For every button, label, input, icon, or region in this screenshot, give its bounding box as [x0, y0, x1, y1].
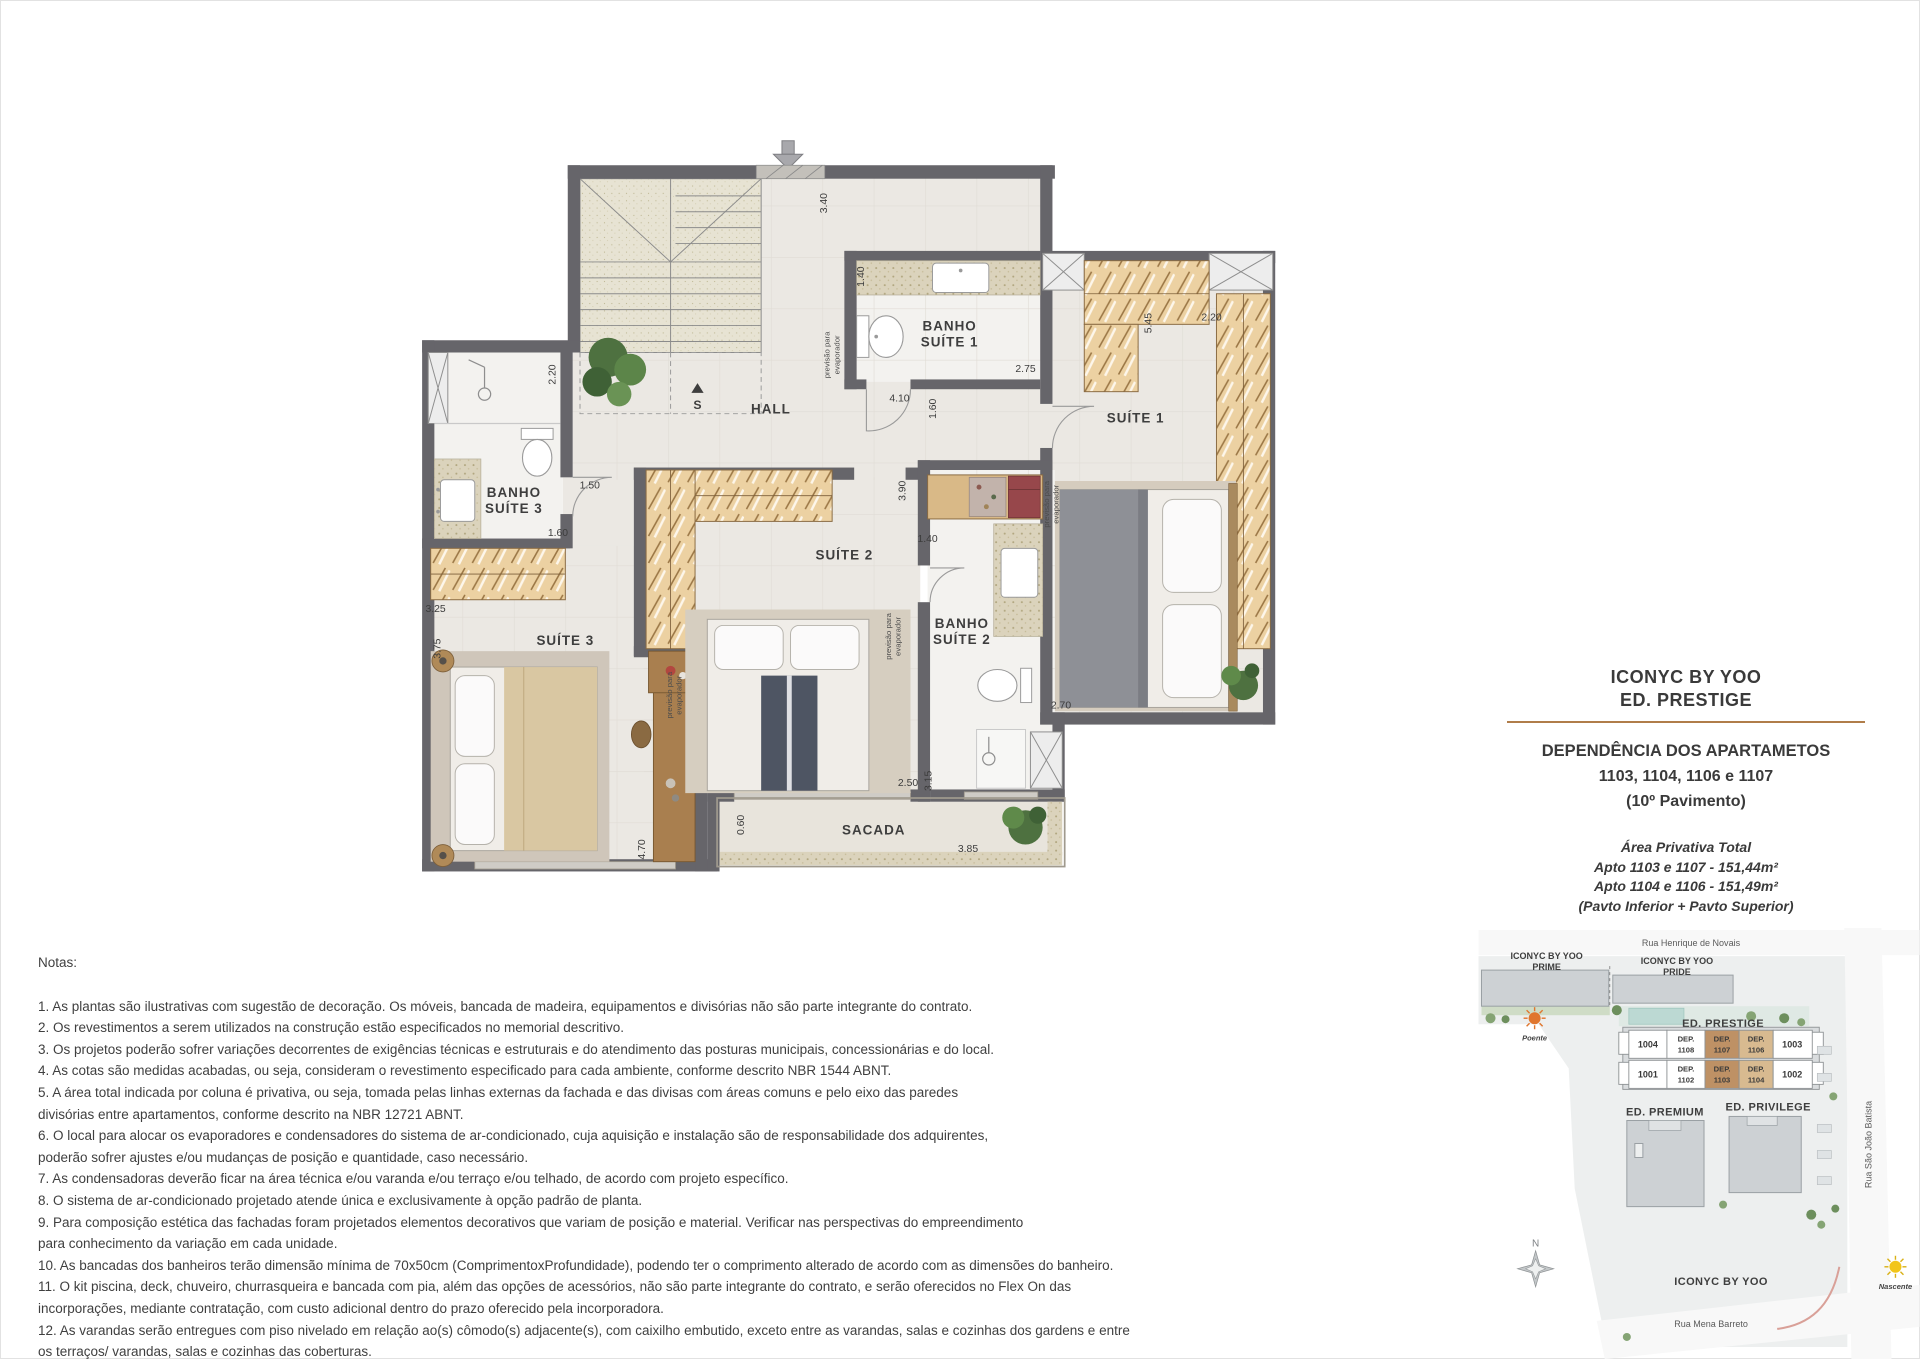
building-label-prime: ICONYC BY YOO — [1510, 951, 1582, 961]
accent-rule — [1507, 721, 1865, 723]
sun-west-label: Poente — [1522, 1033, 1547, 1042]
unit-label: 1001 — [1638, 1069, 1658, 1079]
compass-n-label: N — [1532, 1239, 1539, 1250]
area-line: (Pavto Inferior + Pavto Superior) — [1505, 897, 1867, 917]
note-item: 10. As bancadas dos banheiros terão dime… — [38, 1255, 1208, 1277]
note-item: 5. A área total indicada por coluna é pr… — [38, 1082, 1208, 1125]
unit-label: 1108 — [1678, 1045, 1695, 1054]
unit-numbers: 1103, 1104, 1106 e 1107 — [1505, 764, 1867, 789]
building-label-pride: ICONYC BY YOO — [1641, 956, 1713, 966]
towels — [1008, 476, 1040, 518]
unit-label: DEP. — [1678, 1034, 1695, 1043]
unit-label: DEP. — [1714, 1034, 1731, 1043]
dimension-label: 1.50 — [580, 480, 600, 491]
dimension-label: 3.15 — [923, 771, 934, 791]
room-label-banho-suite1: SUÍTE 1 — [921, 334, 979, 349]
room-label-suite1: SUÍTE 1 — [1107, 410, 1165, 425]
dimension-label: 3.90 — [898, 480, 909, 500]
evaporator-note: previsão para — [1042, 480, 1051, 527]
evaporator-note: evaporador — [894, 617, 903, 656]
room-label-banho-suite2: SUÍTE 2 — [933, 632, 991, 647]
note-item: 11. O kit piscina, deck, chuveiro, churr… — [38, 1276, 1208, 1319]
evaporator-note: evaporador — [1052, 484, 1061, 523]
note-item: 2. Os revestimentos a serem utilizados n… — [38, 1017, 1208, 1039]
complex-label: ICONYC BY YOO — [1674, 1276, 1768, 1288]
note-item: 1. As plantas são ilustrativas com suges… — [38, 996, 1208, 1018]
toilet — [978, 670, 1017, 702]
area-title: Área Privativa Total — [1505, 838, 1867, 858]
dimension-label: 2.20 — [1201, 313, 1221, 324]
sun-east-label: Nascente — [1879, 1282, 1912, 1291]
street-label-north: Rua Henrique de Novais — [1642, 938, 1741, 948]
unit-label: DEP. — [1748, 1034, 1765, 1043]
entry-arrow-icon — [773, 141, 802, 169]
note-item: 3. Os projetos poderão sofrer variações … — [38, 1039, 1208, 1061]
area-line: Apto 1104 e 1106 - 151,49m² — [1505, 877, 1867, 897]
notes-section: Notas: 1. As plantas são ilustrativas co… — [38, 952, 1208, 1359]
building-title: ED. PRESTIGE — [1505, 689, 1867, 712]
room-label-banho-suite3: SUÍTE 3 — [485, 501, 543, 516]
dimension-label: 1.40 — [856, 266, 867, 286]
dimension-label: 3.25 — [425, 604, 445, 615]
evaporator-note: previsão para — [823, 331, 832, 378]
toilet — [522, 439, 551, 476]
room-label-suite2: SUÍTE 2 — [816, 547, 874, 562]
building-label-prime: PRIME — [1532, 962, 1561, 972]
evaporator-note: previsão para — [884, 612, 893, 659]
dimension-label: 3.85 — [958, 844, 978, 855]
dimension-label: 1.60 — [548, 528, 568, 539]
dimension-label: 2.50 — [898, 778, 918, 789]
note-item: 9. Para composição estética das fachadas… — [38, 1212, 1208, 1255]
compass-rose-icon: N — [1518, 1239, 1554, 1287]
unit-label: 1104 — [1748, 1075, 1765, 1084]
project-title: ICONYC BY YOO — [1505, 666, 1867, 689]
area-line: Apto 1103 e 1107 - 151,44m² — [1505, 858, 1867, 878]
dimension-label: 2.70 — [1051, 701, 1071, 712]
street-label-east: Rua São João Batista — [1863, 1100, 1873, 1188]
building-privilege — [1729, 1116, 1801, 1192]
evaporator-note: evaporador — [675, 675, 684, 714]
building-label-pride: PRIDE — [1663, 967, 1691, 977]
plan-heading: DEPENDÊNCIA DOS APARTAMETOS — [1505, 739, 1867, 764]
title-block: ICONYC BY YOO ED. PRESTIGE DEPENDÊNCIA D… — [1505, 666, 1867, 916]
unit-label: 1103 — [1714, 1075, 1731, 1084]
dimension-label: 5.45 — [1144, 313, 1155, 333]
chair — [631, 721, 651, 748]
dimension-label: 4.10 — [889, 393, 909, 404]
dimension-label: 3.75 — [432, 638, 443, 658]
dimension-label: 1.40 — [917, 534, 937, 545]
evaporator-note: evaporador — [832, 335, 841, 374]
entry-door — [756, 165, 825, 178]
unit-label: DEP. — [1748, 1064, 1765, 1073]
note-item: 7. As condensadoras deverão ficar na áre… — [38, 1168, 1208, 1190]
floor-plan: S — [416, 134, 1285, 888]
building-label-premium: ED. PREMIUM — [1626, 1106, 1704, 1118]
note-item: 4. As cotas são medidas acabadas, ou sej… — [38, 1060, 1208, 1082]
unit-label: DEP. — [1678, 1064, 1695, 1073]
unit-label: 1004 — [1638, 1039, 1658, 1049]
note-item: 8. O sistema de ar-condicionado projetad… — [38, 1190, 1208, 1212]
note-item: 6. O local para alocar os evaporadores e… — [38, 1125, 1208, 1168]
dimension-label: 2.20 — [548, 364, 559, 384]
floor-plan-sheet: S — [0, 0, 1920, 1359]
room-label-hall: HALL — [751, 402, 791, 417]
dimension-label: 2.75 — [1015, 364, 1035, 375]
evaporator-note: previsão para — [665, 671, 674, 718]
dimension-label: 3.40 — [819, 193, 830, 213]
building-premium — [1627, 1120, 1704, 1206]
room-label-sacada: SACADA — [842, 823, 905, 838]
notes-title: Notas: — [38, 952, 1208, 974]
dimension-label: 4.70 — [637, 839, 648, 859]
sink — [933, 263, 989, 292]
unit-label: 1003 — [1782, 1039, 1802, 1049]
unit-label: 1106 — [1748, 1045, 1765, 1054]
stairs-s-label: S — [693, 398, 701, 412]
sink — [440, 480, 474, 522]
street-label-south: Rua Mena Barreto — [1674, 1319, 1748, 1329]
toilet — [869, 316, 903, 358]
room-label-banho-suite3: BANHO — [487, 485, 541, 500]
room-label-banho-suite2: BANHO — [935, 616, 989, 631]
dimension-label: 1.60 — [928, 398, 939, 418]
unit-label: 1102 — [1678, 1075, 1695, 1084]
area-info: Área Privativa Total Apto 1103 e 1107 - … — [1505, 838, 1867, 916]
unit-label: DEP. — [1714, 1064, 1731, 1073]
sink — [1001, 548, 1038, 597]
room-label-banho-suite1: BANHO — [923, 318, 977, 333]
room-label-suite3: SUÍTE 3 — [536, 633, 594, 648]
building-label-privilege: ED. PRIVILEGE — [1725, 1101, 1810, 1113]
building-prime — [1481, 970, 1608, 1006]
building-pride — [1613, 975, 1733, 1003]
unit-label: 1107 — [1714, 1045, 1731, 1054]
dimension-label: 0.60 — [736, 815, 747, 835]
note-item: 12. As varandas serão entregues com piso… — [38, 1320, 1208, 1359]
unit-label: 1002 — [1782, 1069, 1802, 1079]
floor-level: (10º Pavimento) — [1505, 789, 1867, 814]
site-plan: Rua Henrique de Novais Rua São João Bati… — [1478, 928, 1920, 1359]
